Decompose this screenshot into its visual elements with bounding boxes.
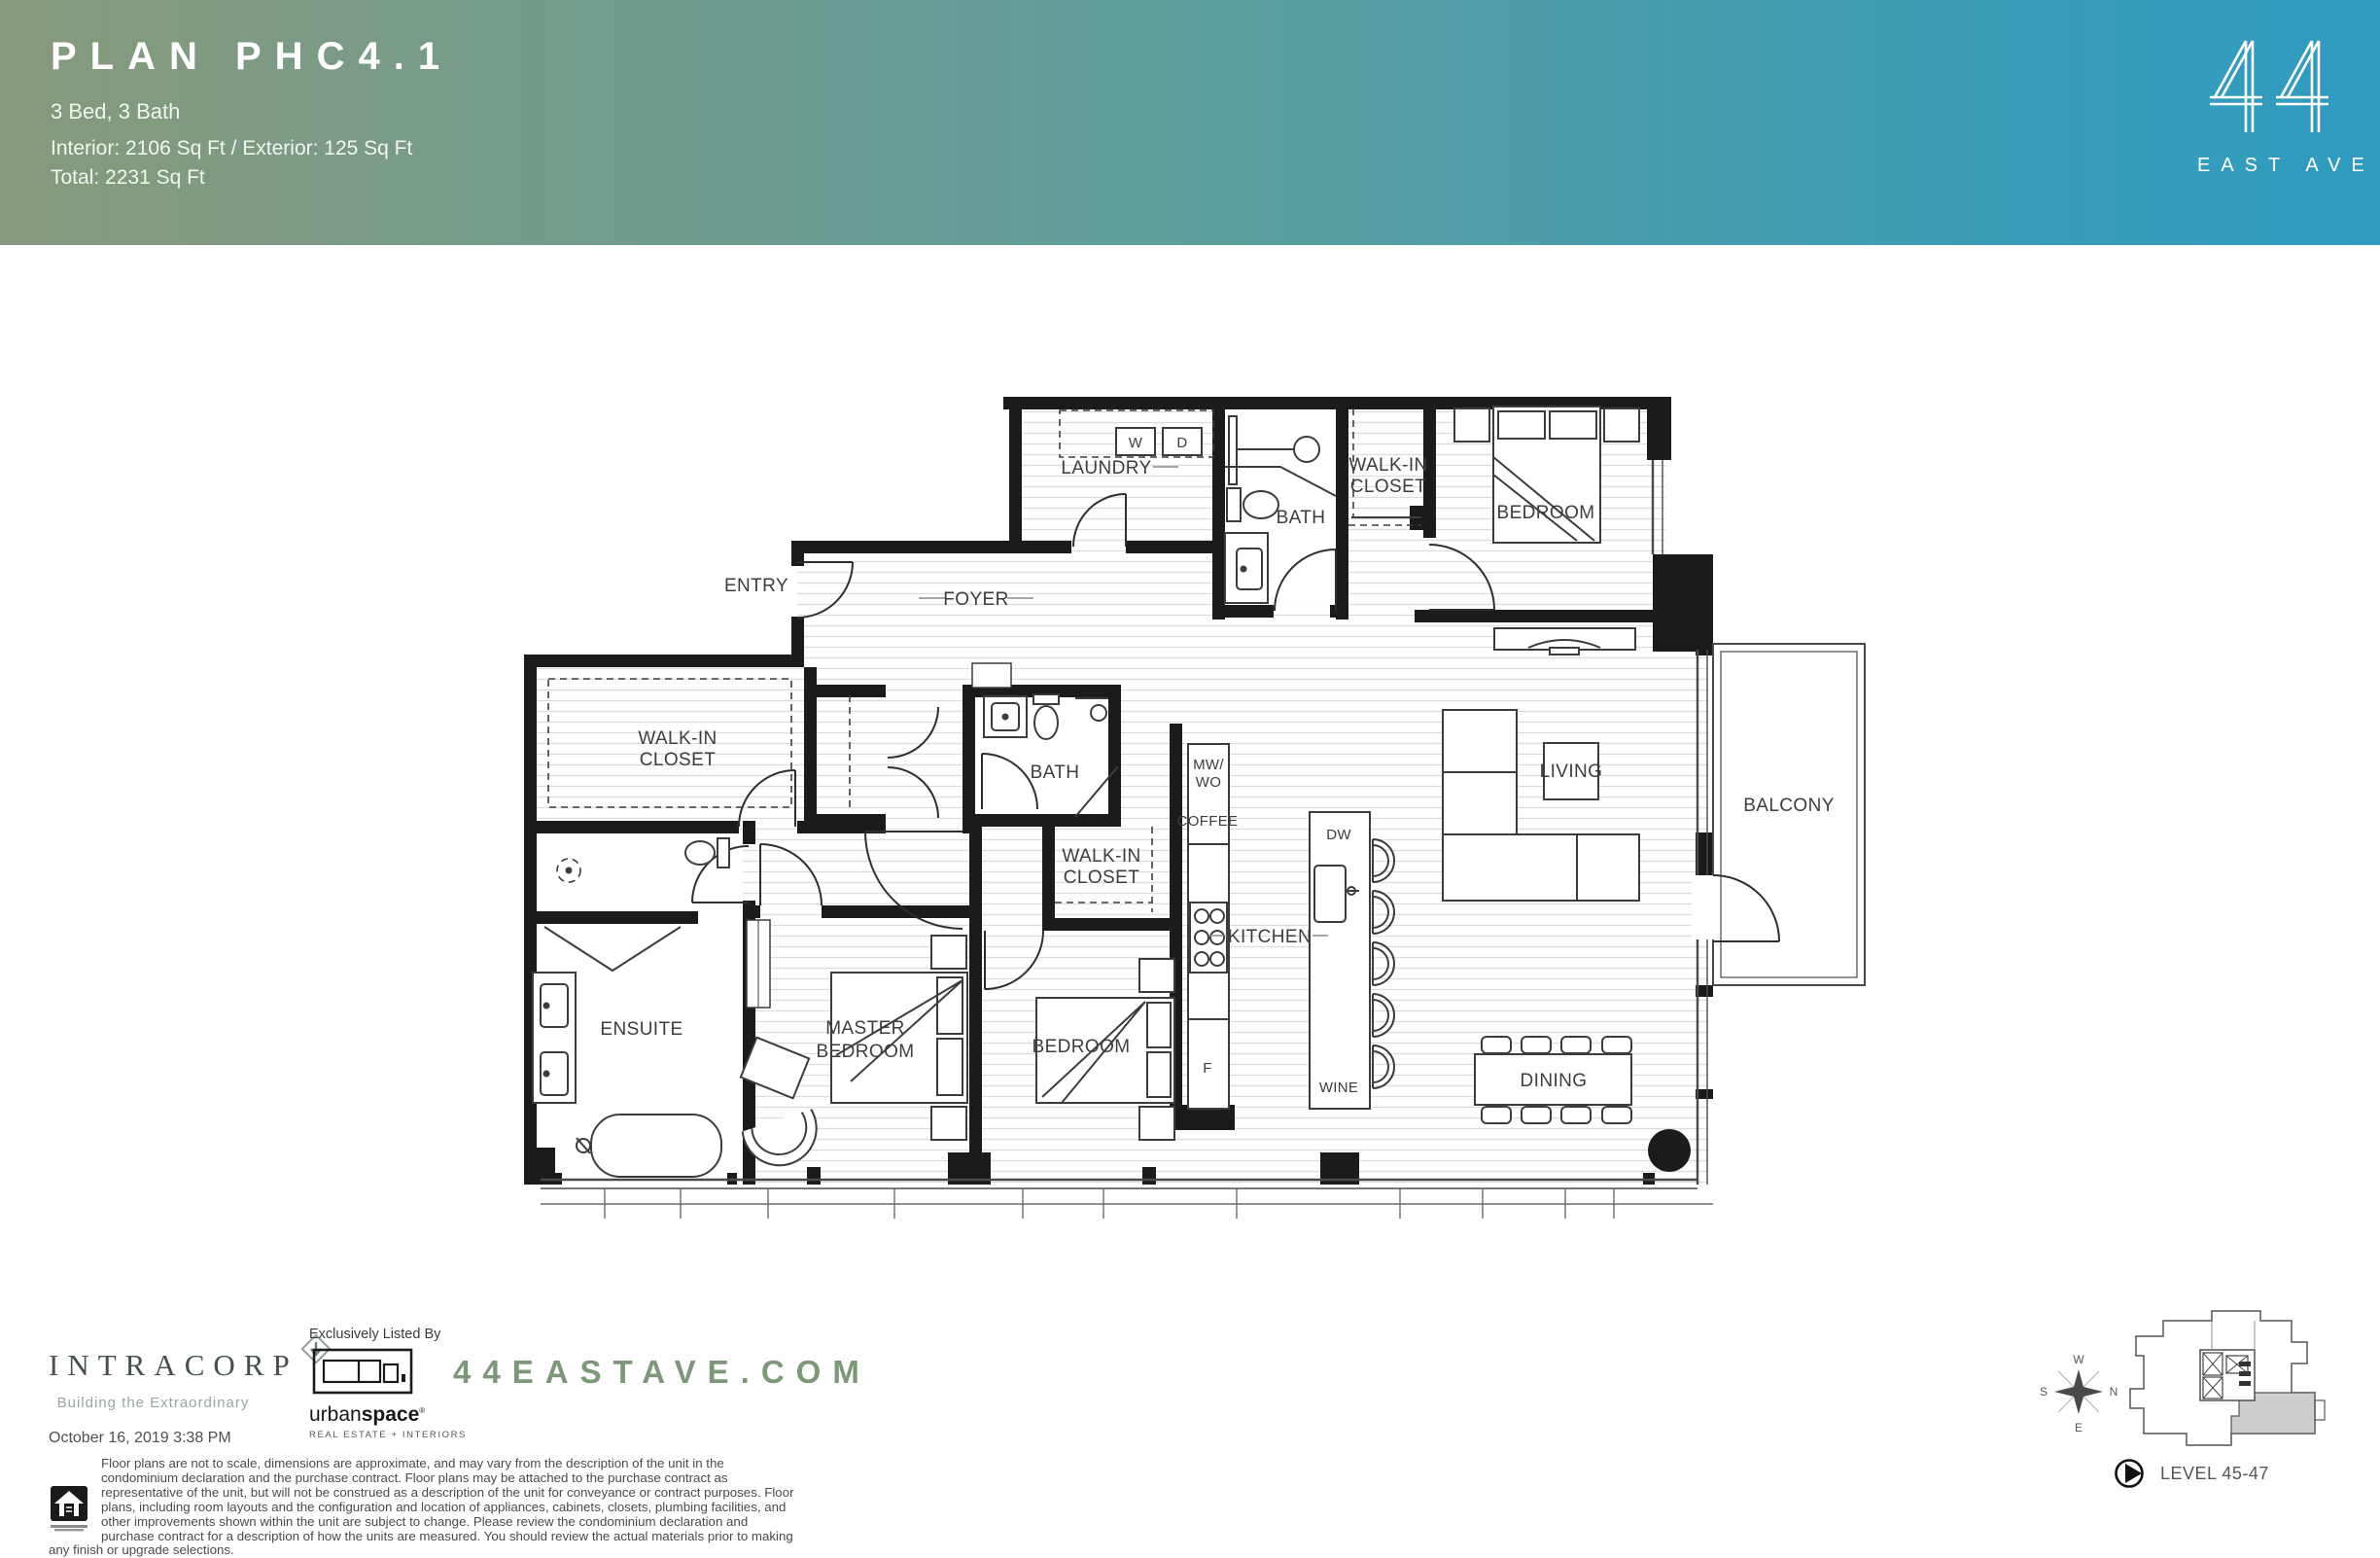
- room-label-washer: W: [1129, 435, 1143, 451]
- room-label-bedroom-upper: BEDROOM: [1497, 503, 1595, 523]
- room-label-dryer: D: [1176, 435, 1187, 451]
- room-label-entry: ENTRY: [724, 576, 788, 596]
- disclaimer-text: Floor plans are not to scale, dimensions…: [49, 1456, 794, 1557]
- label-fridge: F: [1203, 1060, 1211, 1077]
- urbanspace-icon: [312, 1348, 413, 1395]
- print-date: October 16, 2019 3:38 PM: [49, 1430, 231, 1447]
- room-label-dining: DINING: [1521, 1071, 1588, 1091]
- label-mw-2: WO: [1196, 774, 1221, 791]
- room-label-bath-upper: BATH: [1277, 508, 1326, 528]
- compass-rose: W S N E: [2035, 1354, 2122, 1440]
- equal-housing-icon: [49, 1484, 91, 1533]
- room-label-wic-left-1: WALK-IN: [638, 728, 717, 749]
- room-label-master-1: MASTER: [825, 1018, 905, 1039]
- floorplan-page: { "header": { "title": "PLAN PHC4.1", "s…: [0, 0, 2380, 1540]
- structural-column: [1648, 1129, 1691, 1172]
- room-label-wic-left-2: CLOSET: [640, 750, 716, 770]
- compass-e: E: [2075, 1421, 2082, 1434]
- room-label-kitchen: KITCHEN: [1228, 927, 1312, 947]
- intracorp-wordmark: INTRACORP: [49, 1348, 282, 1383]
- intracorp-tagline: Building the Extraordinary: [49, 1395, 258, 1411]
- room-label-bath-mid: BATH: [1031, 762, 1080, 783]
- label-coffee: COFFEE: [1177, 813, 1239, 830]
- level-icon: [2112, 1455, 2149, 1492]
- disclaimer: Floor plans are not to scale, dimensions…: [49, 1457, 795, 1558]
- intracorp-logo: INTRACORP Building the Extraordinary: [49, 1348, 282, 1411]
- room-label-master-2: BEDROOM: [817, 1042, 915, 1062]
- urbanspace-wordmark: urbanspace®: [309, 1403, 416, 1427]
- room-label-foyer: FOYER: [943, 589, 1008, 610]
- room-label-bedroom-mid: BEDROOM: [1032, 1037, 1131, 1057]
- room-label-wic-mid-1: WALK-IN: [1062, 846, 1140, 867]
- room-label-wic-upper-1: WALK-IN: [1348, 455, 1427, 476]
- label-mw-1: MW/: [1193, 757, 1224, 773]
- label-dw: DW: [1326, 827, 1351, 843]
- room-label-wic-mid-2: CLOSET: [1064, 868, 1139, 888]
- floor-plan: ENTRY FOYER LAUNDRY W D BATH WALK-IN CLO…: [0, 0, 2380, 1540]
- listed-by-label: Exclusively Listed By: [309, 1327, 416, 1342]
- balcony-door-gap: [1692, 875, 1715, 939]
- label-wine: WINE: [1319, 1080, 1358, 1096]
- urbanspace-logo: Exclusively Listed By urbanspace® REAL E…: [309, 1327, 416, 1440]
- room-label-wic-upper-2: CLOSET: [1350, 477, 1426, 497]
- room-label-living: LIVING: [1540, 761, 1603, 782]
- compass-s: S: [2040, 1385, 2047, 1399]
- level-indicator: LEVEL 45-47: [2112, 1455, 2269, 1492]
- room-label-ensuite: ENSUITE: [600, 1019, 682, 1040]
- urbanspace-subtitle: REAL ESTATE + INTERIORS: [309, 1430, 416, 1440]
- level-label: LEVEL 45-47: [2160, 1464, 2269, 1484]
- compass-w: W: [2073, 1354, 2084, 1366]
- room-label-laundry: LAUNDRY: [1061, 458, 1151, 478]
- compass-n: N: [2110, 1385, 2118, 1399]
- floor-plan-svg: ENTRY FOYER LAUNDRY W D BATH WALK-IN CLO…: [0, 0, 2380, 1540]
- website-link[interactable]: 44EASTAVE.COM: [453, 1354, 871, 1391]
- room-label-balcony: BALCONY: [1743, 796, 1835, 816]
- key-plan: [2124, 1307, 2333, 1460]
